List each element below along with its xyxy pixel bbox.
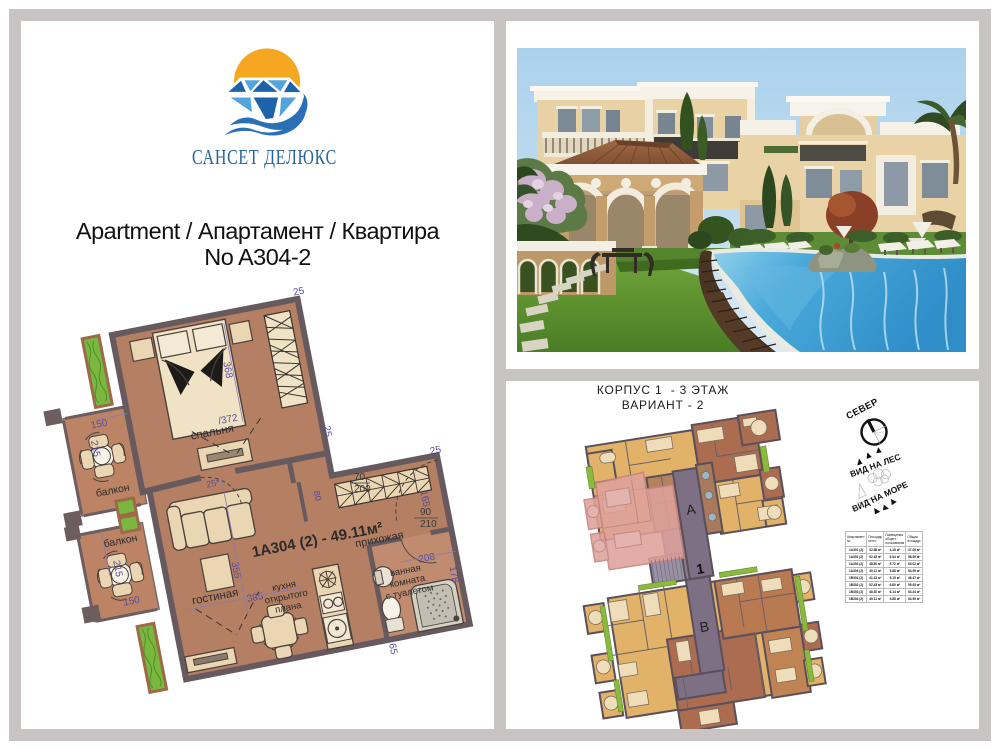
svg-text:70: 70 (354, 472, 366, 483)
svg-text:200: 200 (354, 484, 371, 495)
svg-text:25: 25 (429, 444, 442, 457)
svg-text:25: 25 (320, 425, 333, 438)
svg-text:25: 25 (292, 286, 305, 299)
svg-text:80: 80 (312, 490, 324, 502)
svg-text:65: 65 (386, 642, 399, 655)
svg-text:90: 90 (420, 507, 432, 518)
svg-text:210: 210 (420, 519, 437, 530)
